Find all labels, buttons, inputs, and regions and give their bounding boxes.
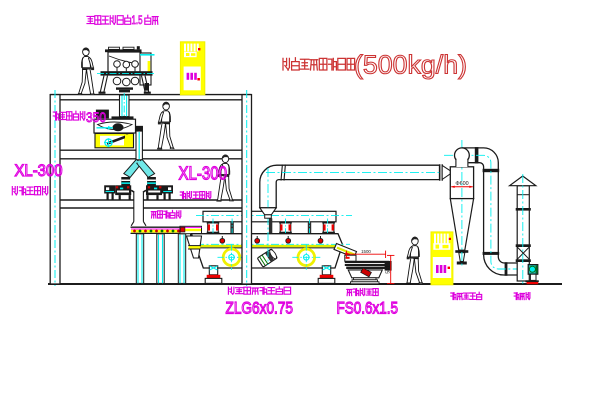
svg-text:350: 350 (86, 110, 106, 125)
svg-text:1500: 1500 (361, 249, 371, 254)
svg-text:1.5: 1.5 (132, 15, 143, 27)
svg-text:XL-300: XL-300 (15, 161, 63, 180)
svg-text:XL-300: XL-300 (179, 164, 228, 184)
svg-text:ZLG6x0.75: ZLG6x0.75 (226, 300, 294, 318)
svg-text:541: 541 (386, 265, 392, 274)
svg-text:FS0.6x1.5: FS0.6x1.5 (337, 300, 399, 318)
svg-text:(500kg/h): (500kg/h) (354, 49, 467, 79)
